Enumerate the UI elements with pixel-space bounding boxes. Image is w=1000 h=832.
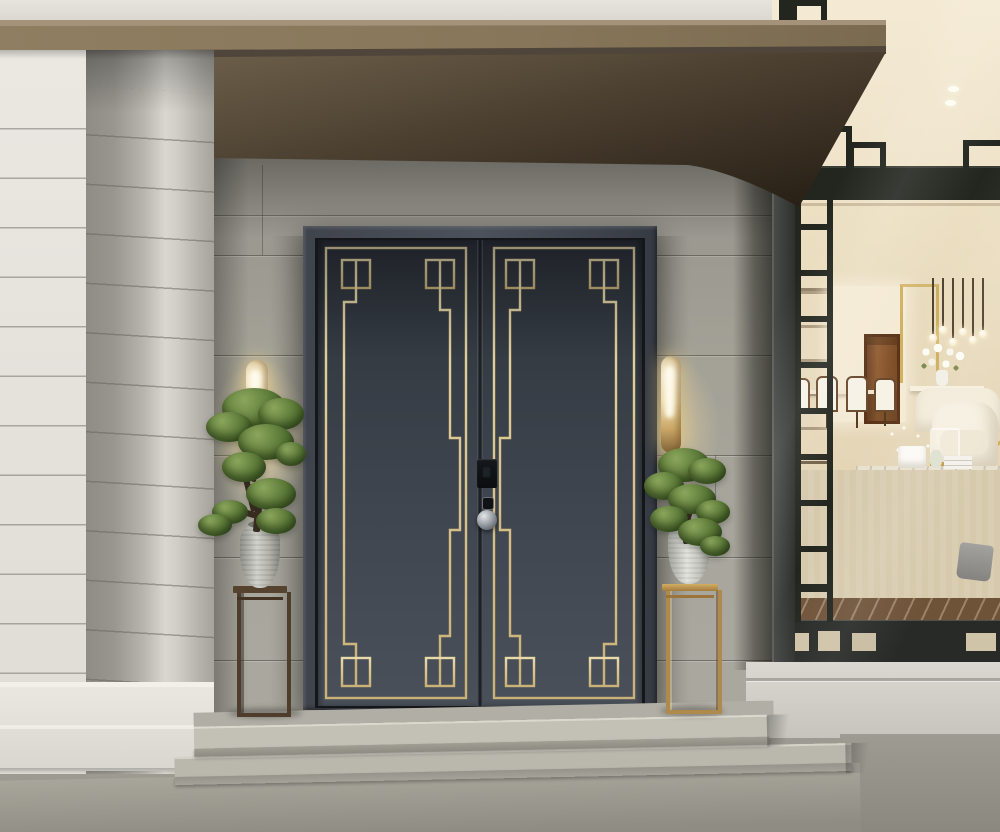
- fascia-shadow-on-wall: [0, 50, 214, 59]
- foliage-blob: [198, 514, 232, 536]
- sconce-glow-core: [665, 366, 674, 418]
- foliage-blob: [222, 452, 266, 482]
- entrance-steps: [0, 699, 861, 832]
- window-side-shadow: [733, 146, 772, 670]
- reveal-top-shadow: [86, 50, 214, 112]
- keyhole[interactable]: [482, 497, 494, 510]
- foliage-blob: [700, 536, 730, 556]
- smart-lock-screen: [482, 466, 491, 478]
- plant-stand-rail: [237, 597, 283, 600]
- plant-stand-rail: [666, 595, 714, 598]
- left-wall-reveal: [86, 50, 214, 774]
- smart-lock-panel[interactable]: [477, 459, 497, 488]
- foliage-blob: [688, 458, 726, 484]
- wall-grooves-skewed: [86, 86, 214, 754]
- soffit-underside: [214, 52, 886, 207]
- foliage-blob: [246, 478, 296, 510]
- plinth-groove: [746, 678, 1000, 681]
- plant-stand-brass: [666, 590, 722, 714]
- door-top-shadow: [318, 240, 642, 360]
- right-wall-sconce: [661, 356, 681, 453]
- scene: [0, 0, 1000, 832]
- left-wall-front: [0, 50, 86, 774]
- step-end-shadow: [767, 714, 796, 747]
- foliage-blob: [256, 508, 296, 534]
- wall-grooves: [0, 80, 86, 730]
- plant-stand-dark: [237, 592, 291, 717]
- plant-stand-top: [662, 584, 718, 591]
- step-end-shadow: [845, 742, 876, 773]
- foliage-blob: [276, 442, 306, 466]
- door-knob[interactable]: [477, 510, 497, 530]
